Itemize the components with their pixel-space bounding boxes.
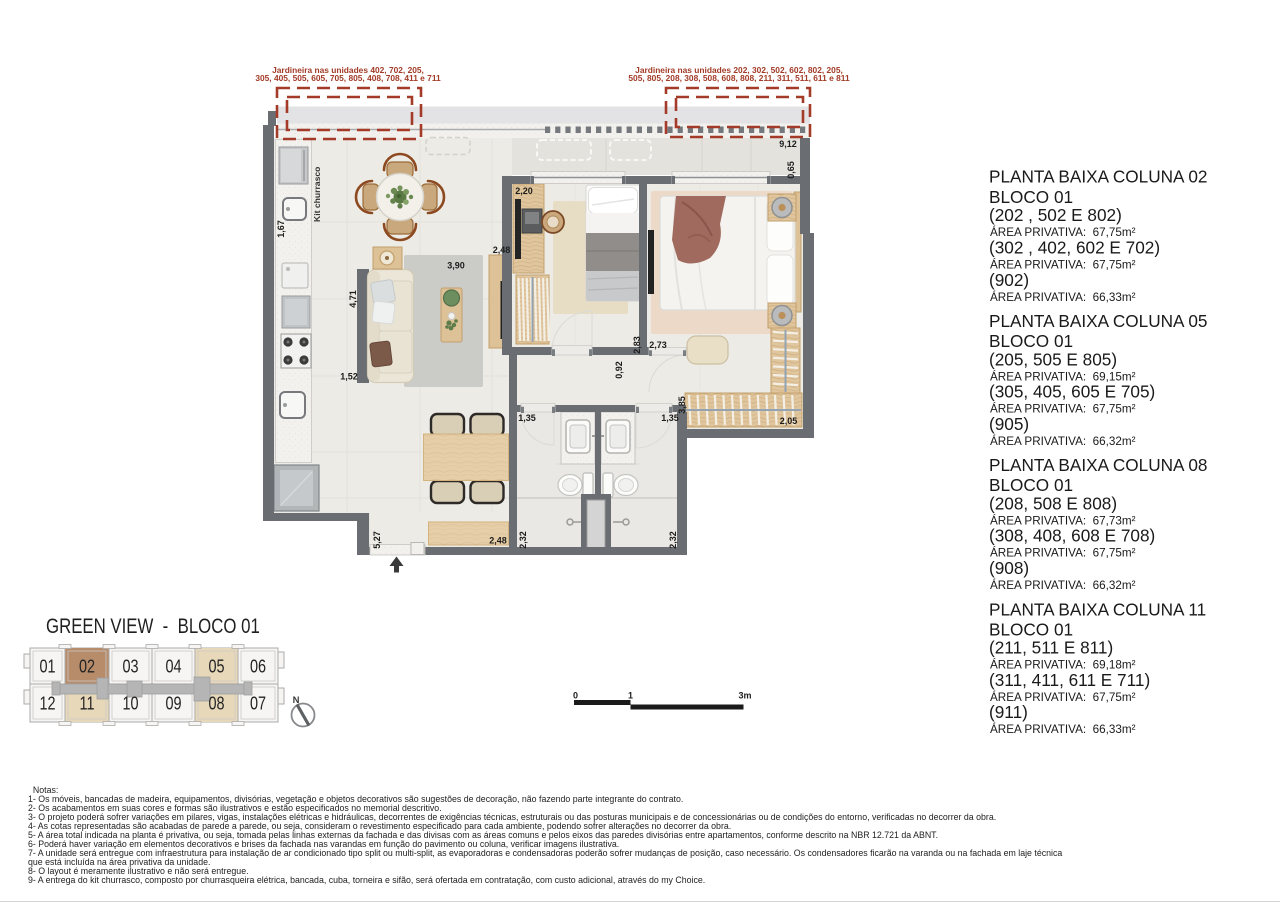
svg-text:(911): (911) (989, 702, 1028, 722)
svg-text:(208, 508 E 808): (208, 508 E 808) (989, 493, 1117, 513)
svg-text:ÁREA PRIVATIVA: 66,33m²: ÁREA PRIVATIVA: 66,33m² (990, 291, 1136, 304)
svg-text:02: 02 (79, 656, 95, 677)
svg-text:5,27: 5,27 (372, 531, 382, 549)
svg-text:08: 08 (208, 693, 224, 714)
svg-text:1,35: 1,35 (518, 413, 536, 423)
svg-text:PLANTA BAIXA COLUNA 05: PLANTA BAIXA COLUNA 05 (989, 311, 1207, 331)
svg-text:2,32: 2,32 (668, 531, 678, 549)
svg-text:01: 01 (39, 656, 55, 677)
svg-text:0,92: 0,92 (614, 361, 624, 379)
svg-text:07: 07 (250, 693, 266, 714)
svg-text:PLANTA BAIXA COLUNA 11: PLANTA BAIXA COLUNA 11 (989, 599, 1206, 619)
svg-text:(302 , 402, 602 E 702): (302 , 402, 602 E 702) (989, 238, 1160, 258)
svg-text:4,71: 4,71 (348, 290, 358, 308)
svg-text:(205, 505 E 805): (205, 505 E 805) (989, 349, 1117, 369)
svg-text:(305, 405, 605 E 705): (305, 405, 605 E 705) (989, 382, 1155, 402)
svg-text:1,52: 1,52 (340, 372, 358, 382)
svg-text:3m: 3m (738, 691, 751, 701)
svg-text:10: 10 (122, 693, 138, 714)
svg-text:9,12: 9,12 (779, 139, 797, 149)
svg-text:1,35: 1,35 (661, 413, 679, 423)
svg-text:2,48: 2,48 (493, 245, 511, 255)
svg-text:(902): (902) (989, 270, 1029, 290)
svg-text:ÁREA PRIVATIVA: 66,33m²: ÁREA PRIVATIVA: 66,33m² (990, 723, 1136, 736)
svg-text:ÁREA PRIVATIVA: 66,32m²: ÁREA PRIVATIVA: 66,32m² (990, 435, 1136, 448)
svg-text:(211, 511 E 811): (211, 511 E 811) (989, 638, 1113, 658)
svg-text:BLOCO 01: BLOCO 01 (989, 187, 1073, 207)
svg-text:1: 1 (628, 691, 633, 701)
svg-text:06: 06 (250, 656, 266, 677)
svg-text:0,65: 0,65 (786, 161, 796, 179)
svg-text:N: N (293, 695, 300, 706)
svg-text:2,32: 2,32 (518, 531, 528, 549)
svg-text:1,67: 1,67 (276, 220, 286, 238)
svg-text:05: 05 (208, 656, 224, 677)
svg-text:BLOCO 01: BLOCO 01 (989, 331, 1073, 351)
svg-text:12: 12 (39, 693, 55, 714)
svg-text:04: 04 (165, 656, 181, 677)
svg-text:03: 03 (122, 656, 138, 677)
svg-text:09: 09 (165, 693, 181, 714)
svg-text:PLANTA BAIXA COLUNA 02: PLANTA BAIXA COLUNA 02 (989, 167, 1207, 187)
svg-text:BLOCO 01: BLOCO 01 (989, 619, 1073, 639)
svg-text:BLOCO 01: BLOCO 01 (989, 475, 1073, 495)
svg-text:3,85: 3,85 (677, 396, 687, 414)
svg-text:2,48: 2,48 (489, 536, 507, 546)
svg-text:(308, 408, 608 E 708): (308, 408, 608 E 708) (989, 526, 1155, 546)
svg-text:Kit churrasco: Kit churrasco (312, 167, 322, 222)
svg-text:3,90: 3,90 (447, 261, 465, 271)
svg-text:2,83: 2,83 (632, 336, 642, 354)
svg-text:PLANTA BAIXA COLUNA 08: PLANTA BAIXA COLUNA 08 (989, 455, 1207, 475)
svg-text:0: 0 (573, 691, 578, 701)
svg-text:(905): (905) (989, 414, 1029, 434)
svg-text:2,73: 2,73 (649, 340, 667, 350)
svg-text:ÁREA PRIVATIVA: 66,32m²: ÁREA PRIVATIVA: 66,32m² (990, 579, 1136, 592)
svg-text:11: 11 (80, 693, 95, 714)
svg-text:(311, 411, 611 E 711): (311, 411, 611 E 711) (989, 670, 1150, 690)
svg-text:(202 , 502 E 802): (202 , 502 E 802) (989, 205, 1122, 225)
svg-text:(908): (908) (989, 558, 1029, 578)
svg-text:2,05: 2,05 (780, 416, 798, 426)
svg-text:2,20: 2,20 (515, 186, 533, 196)
